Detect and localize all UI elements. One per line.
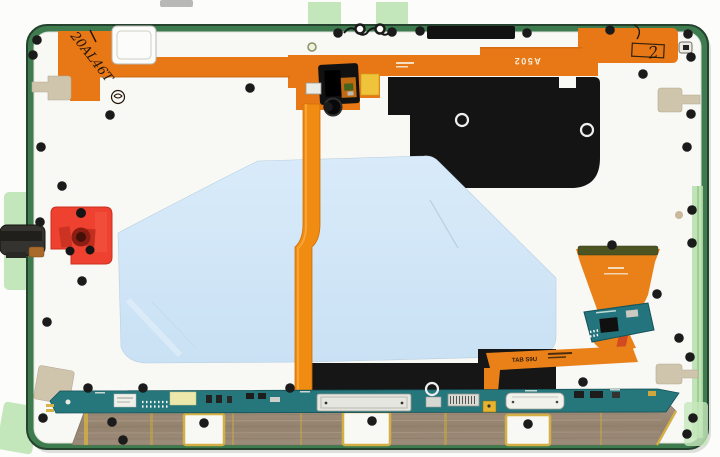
pcb-gold-pad xyxy=(46,409,54,412)
silkscreen-mark xyxy=(396,62,414,64)
assembly-photo: 20AL46T A502 2 xyxy=(0,0,720,457)
screw-dot xyxy=(638,69,648,79)
pcb-connector-white xyxy=(506,393,564,409)
screw-dot xyxy=(652,289,662,299)
screw-dot xyxy=(605,25,615,35)
pcb-connector-dot xyxy=(401,402,404,405)
screw-dot xyxy=(77,276,87,286)
pcb-chip xyxy=(246,393,254,399)
screw-dot xyxy=(682,142,692,152)
display-flex-connector-bar xyxy=(578,246,658,255)
screw-dot xyxy=(28,50,38,60)
pcb-chip xyxy=(258,393,266,399)
pcb-gold-pad xyxy=(648,391,656,396)
silkscreen-mark xyxy=(95,392,105,394)
flex-connector-white xyxy=(306,83,321,94)
pcb-chip xyxy=(590,391,603,398)
screw-dot xyxy=(42,317,52,327)
silkscreen-mark xyxy=(300,391,310,393)
screw-dot xyxy=(38,413,48,423)
screw-dot xyxy=(118,435,128,445)
gasket-hole xyxy=(76,232,86,242)
flex-print-a502: A502 xyxy=(513,56,541,66)
pcb-connector-dot xyxy=(512,401,515,404)
screw-dot xyxy=(687,238,697,248)
edge-black-strip xyxy=(427,26,515,39)
sub-pcb-chip xyxy=(599,317,618,333)
screw-dot xyxy=(686,52,696,62)
screw-dot xyxy=(522,28,532,38)
edge-clip xyxy=(0,225,45,258)
screw-dot xyxy=(285,383,295,393)
flex-riser xyxy=(578,28,598,76)
pcb-chip xyxy=(227,396,232,403)
camera-body xyxy=(324,70,341,97)
pcb-label xyxy=(114,394,136,407)
pcb-connector-dot xyxy=(556,401,559,404)
screw-dot xyxy=(683,29,693,39)
pcb-test-point xyxy=(66,400,71,405)
clip-copper-bit xyxy=(29,247,44,257)
pcb-connector-dot xyxy=(325,402,328,405)
screw-dot xyxy=(323,102,333,112)
flex-print-tab: TAB S9U xyxy=(512,357,537,364)
screw-dot xyxy=(32,35,42,45)
copper-gold-seam xyxy=(232,409,234,445)
tape-corner-bottom-right xyxy=(684,402,708,446)
photo-stage: 20AL46T A502 2 xyxy=(0,0,720,457)
copper-gold-seam xyxy=(444,408,447,445)
yellow-pad xyxy=(361,74,379,95)
screw-dot xyxy=(57,181,67,191)
gasket-highlight xyxy=(95,212,107,252)
screw-dot xyxy=(686,109,696,119)
screw-dot xyxy=(138,383,148,393)
camera-solder-bit xyxy=(347,91,353,95)
screw-dot xyxy=(578,377,588,387)
pale-ring xyxy=(308,43,316,51)
screw-dot xyxy=(199,418,209,428)
label-icon-fill xyxy=(683,45,689,50)
tan-dot xyxy=(675,211,683,219)
graphite-notch xyxy=(559,77,576,88)
screw-dot xyxy=(674,333,684,343)
screw-dot xyxy=(523,419,533,429)
pcb-chip xyxy=(206,395,212,403)
screw-dot xyxy=(687,205,697,215)
pcb-component xyxy=(270,397,280,402)
screw-dot xyxy=(607,240,617,250)
screw-dot xyxy=(333,28,343,38)
silkscreen-mark xyxy=(610,389,620,391)
sub-pcb-connector xyxy=(626,309,639,317)
pcb-chip xyxy=(612,392,620,398)
clip-groove xyxy=(0,231,42,241)
tape-strip-right-core xyxy=(697,186,699,438)
screw-dot xyxy=(245,83,255,93)
copper-gold-seam xyxy=(300,409,302,445)
flex-band-mid xyxy=(378,55,482,76)
screw-dot xyxy=(107,417,117,427)
gasket-dot xyxy=(86,246,95,255)
pcb-component xyxy=(426,397,441,407)
screw-dot xyxy=(367,416,377,426)
cropped-object xyxy=(160,0,193,7)
gasket-dot xyxy=(76,208,86,218)
screw-dot xyxy=(105,110,115,120)
copper-gold-seam xyxy=(600,407,602,445)
screw-dot xyxy=(685,352,695,362)
main-pcb xyxy=(46,389,679,413)
copper-gold-seam xyxy=(150,409,153,445)
pcb-yellow-pad xyxy=(170,392,196,405)
screw-dot xyxy=(36,142,46,152)
edge-hole xyxy=(356,25,365,34)
camera-pcb-bit xyxy=(344,83,353,90)
screw-dot xyxy=(682,429,692,439)
silkscreen-mark xyxy=(396,66,408,68)
screw-dot xyxy=(415,26,425,36)
screw-dot xyxy=(83,383,93,393)
edge-hole xyxy=(376,25,385,34)
camera-module xyxy=(318,63,360,105)
pcb-gold-pad xyxy=(46,404,54,407)
silkscreen-mark xyxy=(608,267,624,269)
copper-cutout xyxy=(343,412,390,445)
pcb-connector-dot xyxy=(487,404,490,407)
screw-dot xyxy=(688,413,698,423)
silkscreen-mark xyxy=(525,390,537,392)
screw-dot xyxy=(35,217,45,227)
clip-lip xyxy=(6,252,26,258)
screw-dot xyxy=(387,27,397,37)
copper-gold-edge-left xyxy=(84,408,88,445)
label-icon xyxy=(679,42,692,53)
pcb-chip xyxy=(574,391,584,398)
silkscreen-mark xyxy=(604,273,628,275)
gasket-dot xyxy=(66,247,75,256)
pcb-chip xyxy=(216,395,222,403)
